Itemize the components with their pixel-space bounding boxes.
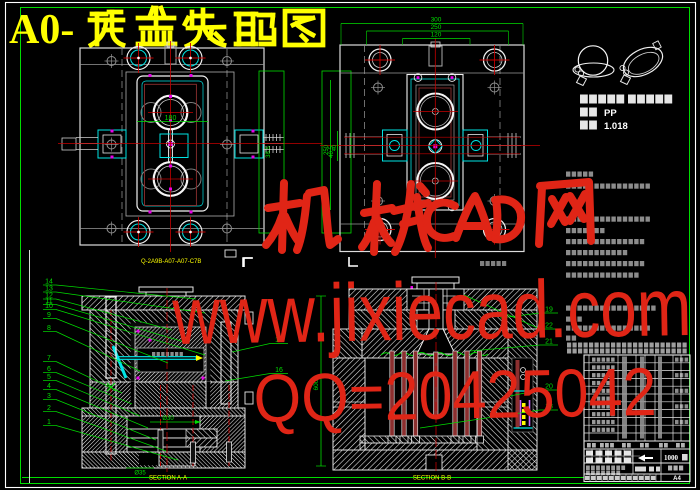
svg-text:10: 10 [45,303,53,310]
svg-text:SECTION B-B: SECTION B-B [413,476,451,482]
svg-text:14: 14 [45,279,53,286]
svg-text:Q-2A9B-A07-A07-C7B: Q-2A9B-A07-A07-C7B [141,259,201,265]
svg-text:38.5: 38.5 [266,146,272,158]
svg-text:A4: A4 [673,476,681,482]
svg-text:A0-: A0- [9,7,74,53]
svg-text:180: 180 [165,115,177,122]
svg-text:120: 120 [431,32,442,39]
svg-text:5: 5 [47,374,51,381]
svg-text:8: 8 [47,325,51,332]
svg-text:2: 2 [47,405,51,412]
svg-text:300: 300 [431,17,442,24]
svg-text:SECTION A-A: SECTION A-A [149,476,187,482]
svg-text:40: 40 [332,145,338,151]
svg-text:250: 250 [324,144,330,155]
svg-text:7: 7 [47,355,51,362]
svg-text:1000: 1000 [664,454,679,462]
svg-text:4: 4 [47,383,51,390]
svg-text:Ø35: Ø35 [134,471,146,477]
svg-text:QQ=20425042: QQ=20425042 [253,354,657,437]
svg-text:250: 250 [431,24,442,31]
svg-text:3: 3 [47,393,51,400]
svg-text:www.jixiecad.com: www.jixiecad.com [171,262,692,362]
svg-text:PP: PP [604,108,617,119]
svg-text:13: 13 [45,286,53,293]
svg-text:1.018: 1.018 [604,121,628,132]
svg-text:6: 6 [47,366,51,373]
svg-text:9: 9 [47,312,51,319]
svg-text:1: 1 [47,419,51,426]
svg-text:Ø30: Ø30 [162,416,174,422]
